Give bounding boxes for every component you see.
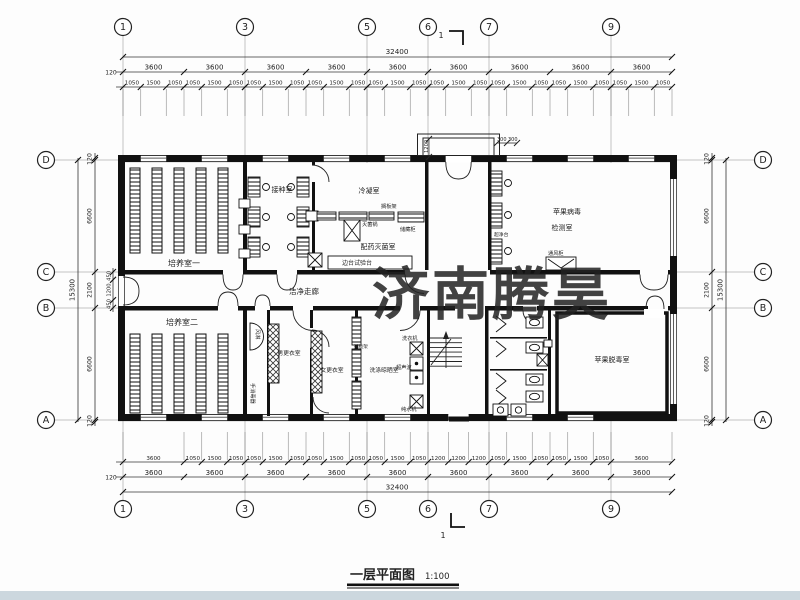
dim-label: 1500 [268,456,283,462]
dim-label: 120 [87,415,94,427]
dimension-lines-top: 3240036003600360036003600360036003600360… [105,47,675,116]
grid-label: 7 [486,504,492,515]
small-label: 搁板架 [354,343,368,350]
small-label: 纯水机 [401,405,417,413]
room-label: 苹果脱毒室 [595,355,630,364]
small-label: 储藏柜 [400,225,416,233]
culture-racks [130,168,228,413]
small-label: 手消毒器 [249,383,257,405]
drawing-title: 一层平面图 [350,568,415,583]
dim-label: 1050 [369,81,384,87]
dim-label: 6600 [87,356,94,372]
dim-label: 1050 [491,81,506,87]
grid-label: 9 [608,22,614,33]
dimension-lines-left: 120660021006600120153004501200450 [69,153,117,427]
dim-label: 3600 [634,456,649,462]
dim-label: 3600 [267,64,285,72]
grid-label: D [42,155,49,166]
dim-label: 120 [704,415,711,427]
dim-label: 3600 [328,64,346,72]
small-label: 300 [497,137,507,143]
dim-label: 3600 [206,64,224,72]
grid-label: A [760,415,767,426]
dim-label: 3600 [572,64,590,72]
dim-label: 1050 [430,81,445,87]
dim-label: 1050 [186,456,201,462]
dim-label: 1050 [229,81,244,87]
small-label: 洗衣机 [402,334,418,342]
dim-label: 1050 [308,81,323,87]
dim-label: 3600 [450,469,468,477]
small-label: 300 [508,137,518,143]
room-label: 冷凝室 [359,186,380,195]
grid-label: 1 [120,22,126,33]
dim-label: 32400 [386,483,409,492]
dim-label: 1050 [534,81,549,87]
dim-label: 120 [105,70,117,77]
dim-label: 1500 [573,456,588,462]
room-label: 洗涤晾晒室 [370,366,399,374]
grid-label: D [759,155,766,166]
grid-label: 3 [242,504,248,515]
dim-label: 3600 [328,469,346,477]
grid-label: 3 [242,22,248,33]
dim-label: 1500 [390,81,405,87]
room-label: 培养室二 [166,317,198,327]
dim-label: 1050 [595,81,610,87]
dim-label: 3600 [511,64,529,72]
grid-label: 1 [120,504,126,515]
room-label: 培养室一 [168,258,200,268]
grid-label: 5 [364,504,370,515]
dim-label: 1050 [656,81,671,87]
dim-label: 1050 [290,81,305,87]
floor-plan-canvas: 113355667799DDCCBBAA 3240036003600360036… [0,0,800,600]
dim-label: 1050 [613,81,628,87]
dim-label: 3600 [145,469,163,477]
dim-label: 1500 [634,81,649,87]
dim-label: 1050 [369,456,384,462]
dim-label: 1050 [125,81,140,87]
dim-label: 120 [105,475,117,482]
dim-label: 3600 [633,64,651,72]
dim-label: 1500 [329,456,344,462]
dimension-lines-right: 12066002100660012015300 [704,153,730,427]
dim-label: 15300 [69,279,77,301]
dim-label: 1050 [595,456,610,462]
dim-label: 3600 [572,469,590,477]
grid-label: C [760,267,767,278]
drawing-scale: 1:100 [425,572,450,582]
dim-label: 1500 [207,456,222,462]
dim-label: 6600 [704,208,711,224]
dim-label: 1200 [107,283,113,296]
laundry-fixtures [352,317,423,409]
dim-label: 1500 [451,81,466,87]
dim-label: 2100 [704,282,711,298]
dim-label: 3600 [511,469,529,477]
dim-label: 3600 [146,456,161,462]
dim-label: 1050 [186,81,201,87]
dim-label: 1500 [207,81,222,87]
dim-label: 3600 [145,64,163,72]
dim-label: 1200 [431,456,446,462]
dim-label: 1500 [512,456,527,462]
dim-label: 3600 [450,64,468,72]
title-block: 一层平面图 1:100 [347,568,459,589]
dim-label: 1500 [146,81,161,87]
small-label: 超净台 [494,231,509,238]
dim-label: 1050 [534,456,549,462]
dim-label: 6600 [704,356,711,372]
room-label: 接种室 [272,185,293,194]
grid-label: A [43,415,50,426]
grid-label: 6 [425,22,431,33]
dim-label: 1050 [290,456,305,462]
section-label-bottom: 1 [440,531,445,540]
room-label: 女更衣室 [320,366,343,374]
small-label: 1200 [424,140,430,153]
dim-label: 1050 [229,456,244,462]
dim-label: 120 [87,153,94,165]
dim-label: 1050 [491,456,506,462]
section-label-top: 1 [438,31,443,40]
small-label: 风淋 [254,329,262,340]
room-label: 男更衣室 [277,349,300,357]
small-label: 边台试验台 [342,259,372,267]
dim-label: 3600 [206,469,224,477]
drawing-sheet: 113355667799DDCCBBAA 3240036003600360036… [0,0,800,600]
room-label: 配药灭菌室 [361,242,396,251]
dim-label: 1500 [573,81,588,87]
dim-label: 32400 [386,47,409,56]
dim-label: 1050 [247,456,262,462]
dim-label: 2100 [87,282,94,298]
exit-door-threshold [449,417,469,422]
dim-label: 1050 [412,81,427,87]
dim-label: 1050 [552,456,567,462]
grid-label: B [760,303,767,314]
dim-label: 1050 [247,81,262,87]
dim-label: 450 [107,299,113,309]
dim-label: 3600 [267,469,285,477]
dim-label: 120 [704,153,711,165]
small-label: 灭菌锅 [362,220,378,228]
small-label: 超声波 [396,363,412,371]
dimension-lines-bottom: 3600105015001050105015001050105015001050… [105,432,675,495]
small-label: 通风柜 [548,249,564,257]
watermark-text: 济南腾昊 [372,262,612,328]
grid-label: 6 [425,504,431,515]
dim-label: 15300 [717,279,725,301]
dim-label: 1500 [512,81,527,87]
dim-label: 1200 [451,456,466,462]
dim-label: 1050 [412,456,427,462]
wc-fixtures [493,316,552,416]
dim-label: 3600 [633,469,651,477]
dim-label: 1500 [390,456,405,462]
grid-label: 7 [486,22,492,33]
dim-label: 6600 [87,208,94,224]
dim-label: 1500 [268,81,283,87]
dim-label: 1050 [351,456,366,462]
dim-label: 1050 [473,81,488,87]
dim-label: 3600 [389,469,407,477]
room-label: 洁净走廊 [289,286,319,296]
dim-label: 1200 [472,456,487,462]
grid-label: B [43,303,50,314]
grid-label: C [43,267,50,278]
dim-label: 1050 [552,81,567,87]
room-label: 检测室 [552,223,573,232]
dim-label: 450 [107,271,113,281]
grid-label: 5 [364,22,370,33]
dim-label: 3600 [389,64,407,72]
dim-label: 1050 [351,81,366,87]
room-label: 苹果病毒 [553,207,581,216]
small-label: 搁板架 [381,202,397,210]
grid-label: 9 [608,504,614,515]
dim-label: 1050 [308,456,323,462]
dim-label: 1500 [329,81,344,87]
footer-bar [0,591,800,600]
dim-label: 1050 [168,81,183,87]
stairs [430,331,462,368]
